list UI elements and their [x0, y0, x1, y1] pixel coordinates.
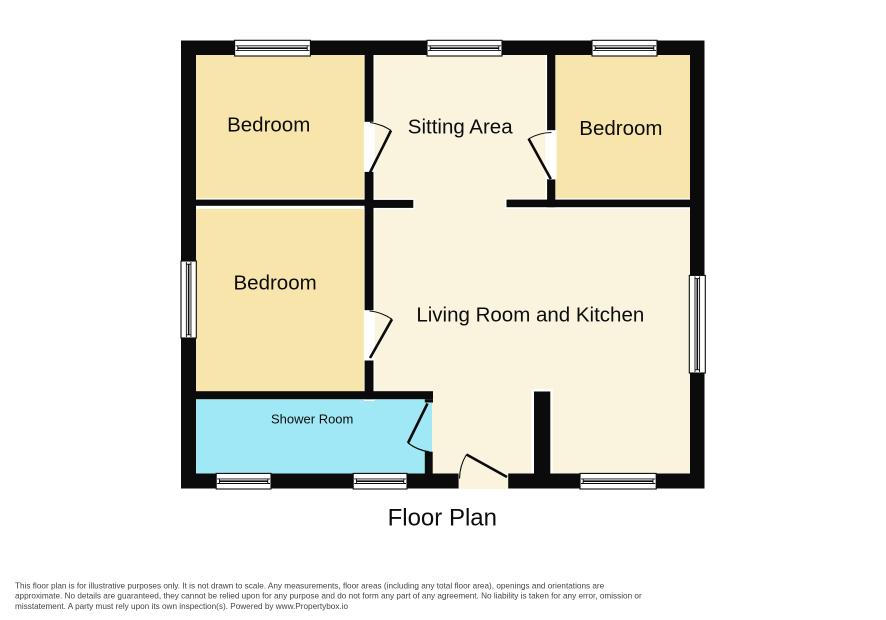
- svg-text:Shower Room: Shower Room: [271, 411, 353, 426]
- svg-text:Living Room and Kitchen: Living Room and Kitchen: [416, 304, 644, 327]
- svg-text:This floor plan is for illustr: This floor plan is for illustrative purp…: [15, 582, 605, 591]
- svg-text:approximate. No details are gu: approximate. No details are guaranteed, …: [15, 592, 642, 601]
- svg-text:Bedroom: Bedroom: [227, 114, 310, 137]
- svg-text:Sitting Area: Sitting Area: [408, 116, 513, 139]
- svg-text:Bedroom: Bedroom: [579, 117, 662, 140]
- svg-text:Bedroom: Bedroom: [234, 271, 317, 294]
- svg-text:misstatement. A party must rel: misstatement. A party must rely upon its…: [15, 602, 349, 611]
- svg-text:Floor Plan: Floor Plan: [388, 505, 497, 532]
